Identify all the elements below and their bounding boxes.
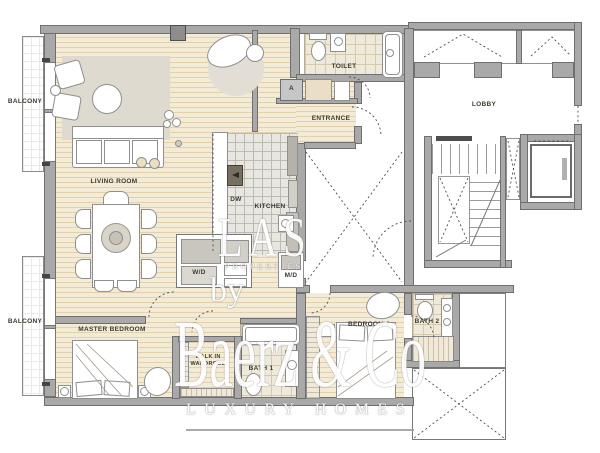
wall-segment [520,134,582,142]
label-lobby: LOBBY [454,101,514,109]
duct-shaft [506,138,520,200]
label-md-unit: M/D [278,272,304,280]
hall-cabinet [305,79,332,101]
wall-segment [304,142,356,149]
dishwasher-appliance [227,165,243,186]
void-room-x [306,152,402,282]
window-sill [42,162,50,166]
wall-segment [40,25,414,34]
storage-rooms-top [412,30,576,64]
wall-segment [290,28,300,78]
fridge [287,136,298,176]
label-entrance: ENTRANCE [304,115,358,123]
wc-bowl [311,41,326,61]
bath2-sink-basin [443,304,451,312]
watermark-tagline: LUXURY HOMES [186,402,413,418]
window [44,328,56,380]
dining-chair [117,280,137,292]
lamp [60,387,69,396]
window-sill [42,382,50,386]
wall-column [170,25,186,41]
wc-tank [309,33,327,40]
wall-segment [44,316,146,324]
dining-chair [103,191,129,205]
watermark-monogram-sub: PROPERTIES [218,263,310,271]
wall-segment [330,285,514,293]
floor-plan: BALCONY BALCONY LIVING ROOM ENTRANCE TOI… [0,0,600,453]
coffee-table [92,84,122,114]
elevator-panel [562,158,567,180]
sofa-cushion [104,140,130,164]
label-closet-a: A [280,85,303,93]
stair-flight-upper [432,144,500,174]
wall-segment [424,136,432,268]
pouf [136,157,147,168]
armchair [51,92,82,121]
plant [163,120,171,128]
dishwasher-arrow-icon [229,172,239,178]
wall-segment [574,22,582,106]
wall-segment [520,134,528,210]
dining-chair [141,234,157,254]
wall-segment [520,202,582,210]
hall-cabinet [334,81,350,101]
watermark-monogram: LAS [218,210,311,266]
sofa-cushion [76,140,102,164]
label-master-bedroom: MASTER BEDROOM [64,326,160,334]
stair-flight-lower [470,176,500,246]
pouf [149,158,160,169]
pillow [75,380,102,397]
dining-chair [75,234,91,254]
sofa-back [72,126,164,139]
side-table [246,44,264,62]
wall-segment [500,136,506,268]
centerpiece-inner [109,231,123,245]
wall-pier [474,62,502,78]
dining-chair [141,259,157,279]
wall-pier [552,62,574,78]
wall-pier [414,62,440,78]
dining-chair [141,209,157,229]
floor-dot [175,140,182,147]
dining-chair [75,259,91,279]
label-living-room: LIVING ROOM [78,178,150,186]
window-sill [42,274,50,278]
dining-chair [94,280,114,292]
pillow [104,380,131,397]
watermark-underline [186,429,414,431]
service-room [456,293,506,368]
label-balcony-lower: BALCONY [4,318,46,326]
window-sill [42,58,50,62]
laundry-appliance [181,239,221,264]
watermark-brand: Baerz & Co [174,306,426,402]
wall-segment [574,134,582,210]
stair-landing-edge [436,136,472,141]
label-balcony-upper: BALCONY [4,98,46,106]
wall-segment [424,260,512,268]
dining-chair [75,209,91,229]
window [44,112,56,162]
label-toilet: TOILET [322,63,366,71]
stair-void [438,176,470,244]
wall-segment [408,22,582,30]
wall-segment [516,30,522,64]
wall-segment [404,28,414,293]
bathtub-tap [386,49,394,57]
plant [172,118,181,127]
side-table [50,85,61,96]
toilet-sink-basin [334,37,343,46]
